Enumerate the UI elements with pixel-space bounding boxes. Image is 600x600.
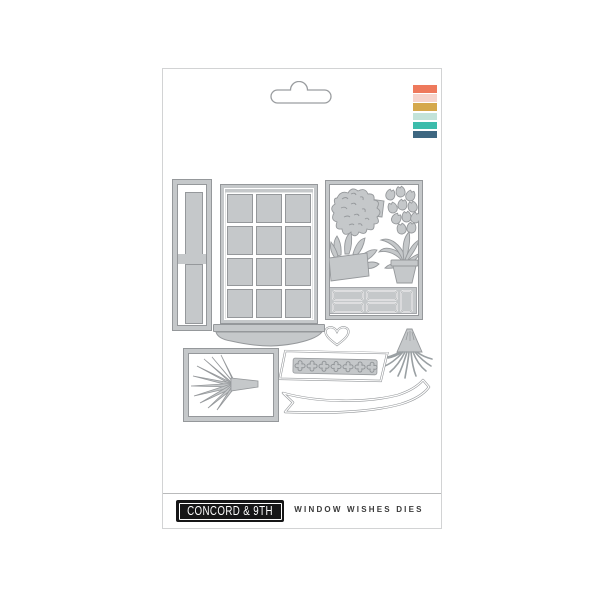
color-stripe	[413, 85, 437, 93]
window-pane	[285, 194, 311, 223]
trim-band	[178, 254, 206, 264]
potted-palm-die	[379, 232, 419, 283]
bush-pot-die	[332, 189, 384, 236]
window-panes	[227, 194, 311, 318]
window-pane	[256, 194, 282, 223]
brand-logo: CONCORD & 9TH	[176, 500, 284, 522]
window-pane	[227, 258, 253, 287]
product-package: CONCORD & 9TH WINDOW WISHES DIES	[162, 68, 442, 529]
leaf-cluster-die	[385, 186, 419, 235]
color-stripe	[413, 103, 437, 111]
framed-plant-die	[184, 349, 278, 421]
color-stripes	[413, 85, 437, 140]
plants-panel-art	[329, 184, 419, 316]
window-box-plant-die	[329, 232, 379, 281]
footer-divider	[163, 493, 441, 494]
window-apron-die	[213, 332, 325, 348]
product-title: WINDOW WISHES DIES	[289, 505, 429, 514]
plants-panel-die	[326, 181, 422, 319]
window-pane	[285, 258, 311, 287]
window-pane	[227, 289, 253, 318]
trim-bar	[185, 264, 203, 324]
framed-plant-art	[188, 353, 274, 417]
window-pane	[256, 258, 282, 287]
page-background: CONCORD & 9TH WINDOW WISHES DIES	[0, 0, 600, 600]
color-stripe	[413, 122, 437, 130]
window-pane	[256, 226, 282, 255]
hang-hole-cutout	[269, 81, 333, 107]
brick-strip-die	[330, 288, 417, 314]
window-pane	[285, 289, 311, 318]
color-stripe	[413, 94, 437, 102]
brand-logo-border: CONCORD & 9TH	[179, 503, 282, 520]
banner-die	[279, 375, 431, 423]
window-pane	[256, 289, 282, 318]
window-pane	[227, 226, 253, 255]
window-grid-die	[220, 184, 318, 324]
color-stripe	[413, 113, 437, 121]
window-pane	[227, 194, 253, 223]
window-pane	[285, 226, 311, 255]
brand-logo-text: CONCORD & 9TH	[187, 504, 273, 518]
color-stripe	[413, 131, 437, 139]
heart-die	[324, 326, 350, 348]
side-trim-inner	[177, 184, 207, 326]
trim-bar	[185, 192, 203, 256]
side-trim-die	[172, 179, 212, 331]
window-sill-die	[213, 324, 325, 332]
